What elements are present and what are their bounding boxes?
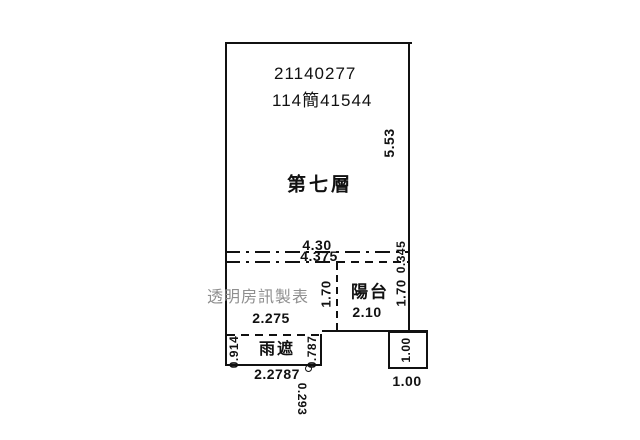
dim-interior-width: 2.275 (252, 311, 290, 325)
dim-balcony-depth-right: 1.70 (395, 279, 408, 306)
dim-corner-box-horizontal: 1.00 (392, 374, 421, 388)
dim-rain-shelter-right-depth: 0.787 (306, 336, 318, 369)
rain-shelter-right-line (320, 334, 322, 366)
rain-shelter-label: 雨遮 (259, 342, 295, 358)
dim-rain-shelter-left-depth: 0.914 (228, 336, 240, 369)
main-floor-label: 第七層 (287, 176, 353, 195)
dim-main-height-right: 5.53 (382, 128, 396, 157)
dim-balcony-width: 2.10 (352, 305, 381, 319)
stray-ring-mark (305, 365, 312, 372)
balcony-label: 陽台 (351, 284, 389, 301)
balcony-divider-dashed-line (336, 263, 338, 331)
main-outline-left (225, 42, 227, 366)
dim-rain-shelter-offset: 0.293 (296, 383, 308, 416)
main-outline-top (225, 42, 412, 44)
dim-rain-shelter-width: 2.2787 (254, 367, 300, 381)
watermark-text: 透明房訊製表 (207, 283, 309, 307)
dim-balcony-depth-left: 1.70 (320, 280, 333, 307)
dim-corner-box-vertical: 1.00 (400, 337, 412, 362)
case-number: 21140277 (274, 64, 356, 84)
file-number: 114簡41544 (272, 86, 372, 111)
survey-floor-plan: 21140277 114簡41544 第七層 陽台 雨遮 透明房訊製表 5.53… (0, 0, 640, 440)
dim-right-edge-offset: 0.345 (395, 241, 407, 274)
dim-main-width-lower: 4.375 (300, 249, 338, 263)
